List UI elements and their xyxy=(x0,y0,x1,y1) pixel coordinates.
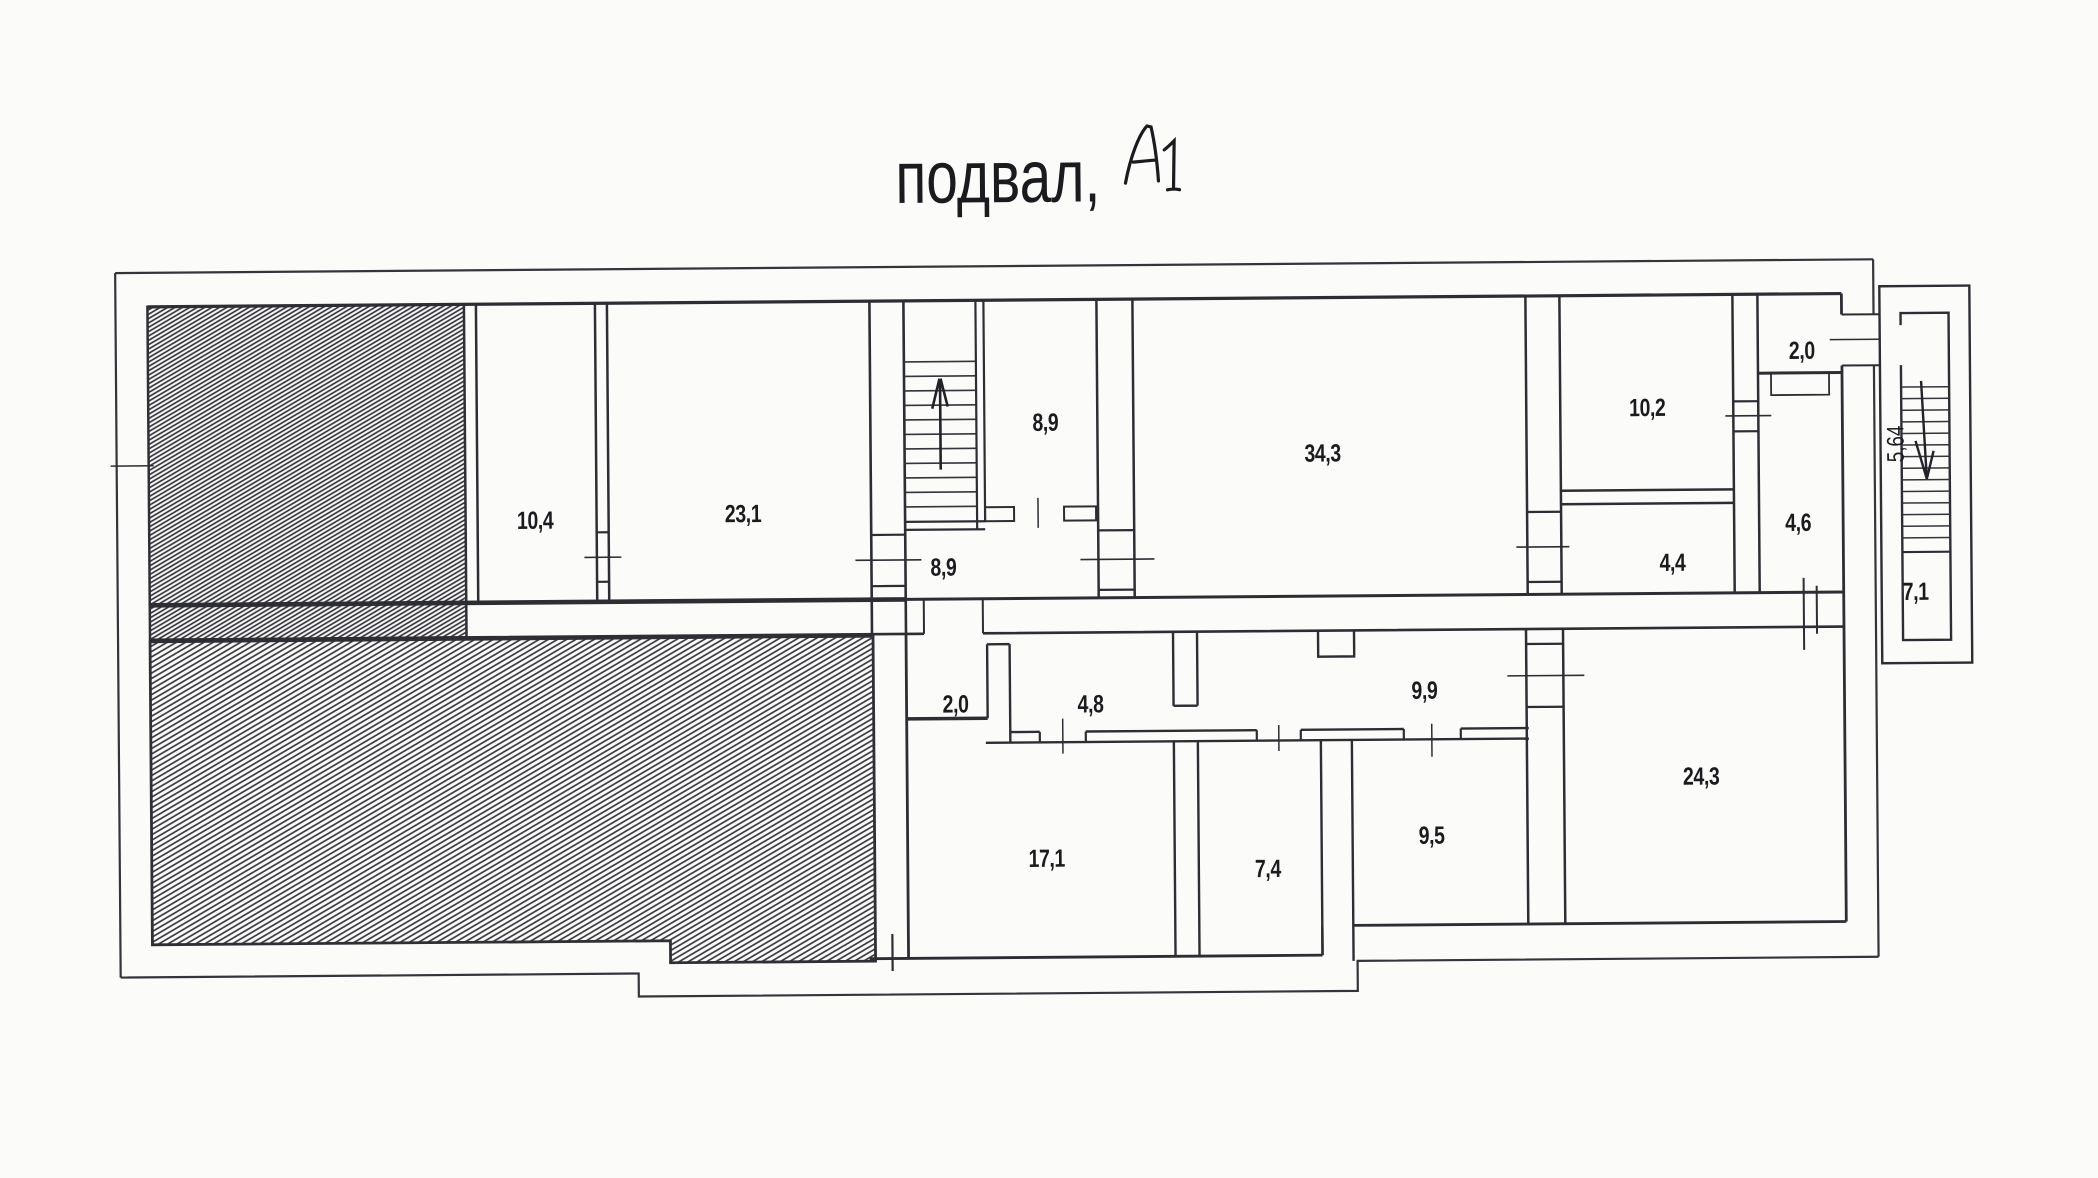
svg-text:5,64: 5,64 xyxy=(1882,426,1909,463)
svg-text:2,0: 2,0 xyxy=(1789,336,1815,364)
svg-text:9,9: 9,9 xyxy=(1411,676,1437,704)
svg-text:17,1: 17,1 xyxy=(1028,844,1065,872)
svg-text:34,3: 34,3 xyxy=(1304,439,1341,467)
svg-text:7,4: 7,4 xyxy=(1255,855,1282,883)
svg-text:10,2: 10,2 xyxy=(1629,394,1666,422)
svg-text:подвал,: подвал, xyxy=(895,134,1101,219)
svg-text:10,4: 10,4 xyxy=(517,506,554,534)
svg-text:24,3: 24,3 xyxy=(1683,762,1720,790)
svg-text:4,8: 4,8 xyxy=(1077,690,1103,718)
svg-text:2,0: 2,0 xyxy=(942,690,968,718)
svg-text:8,9: 8,9 xyxy=(930,553,956,581)
svg-text:8,9: 8,9 xyxy=(1032,408,1058,436)
svg-text:4,4: 4,4 xyxy=(1659,548,1686,576)
svg-text:7,1: 7,1 xyxy=(1903,578,1929,606)
svg-text:23,1: 23,1 xyxy=(725,500,762,528)
svg-text:4,6: 4,6 xyxy=(1785,508,1811,536)
svg-text:9,5: 9,5 xyxy=(1419,821,1445,849)
